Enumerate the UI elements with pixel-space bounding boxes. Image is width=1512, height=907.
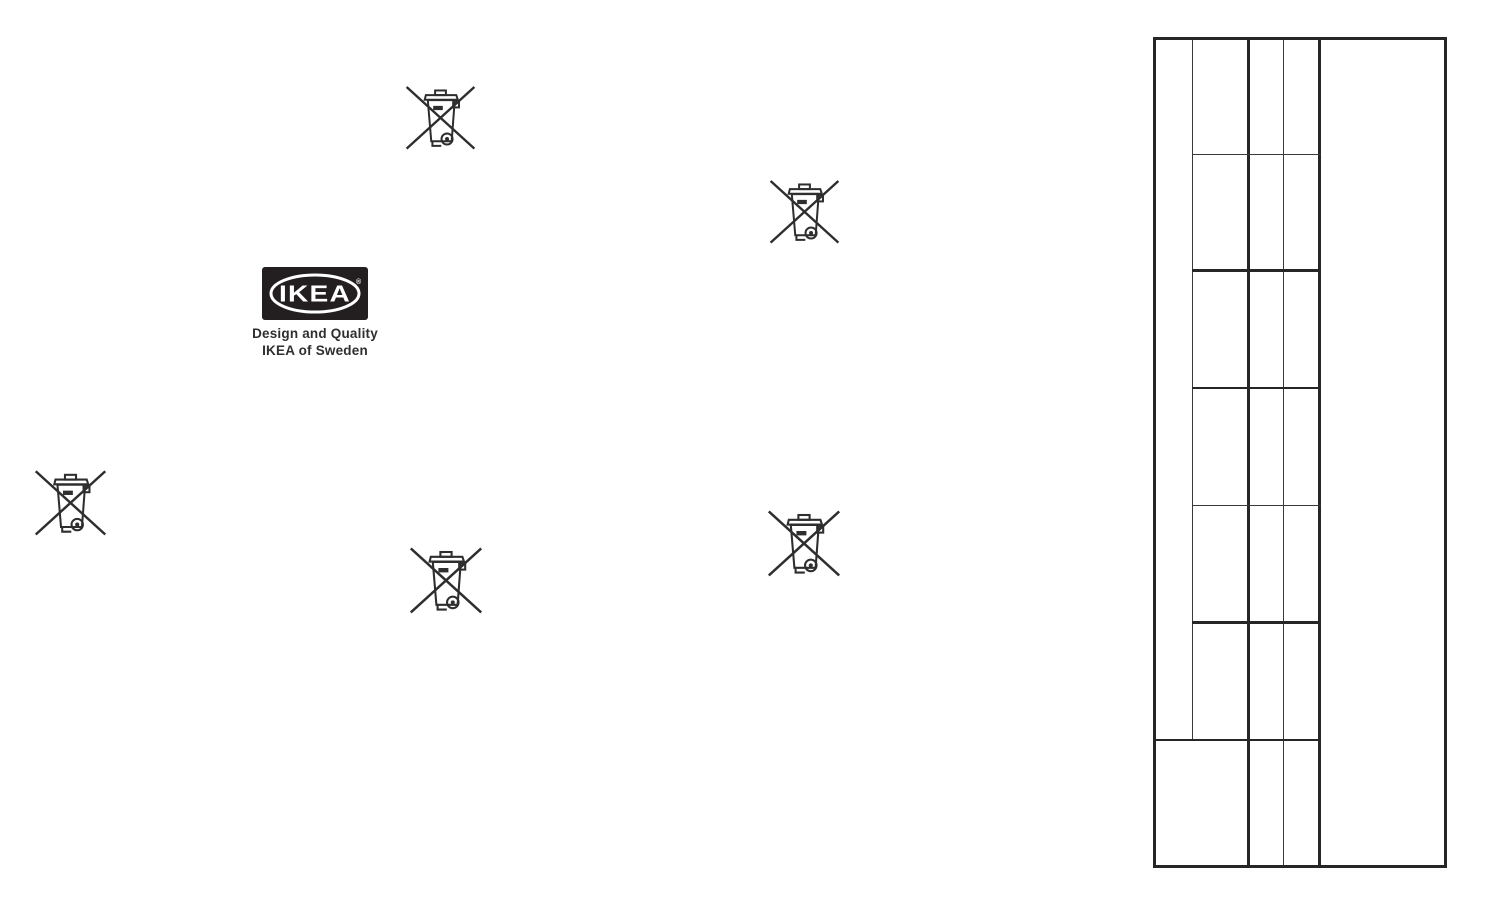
ikea-logo-graphic: IKEA ® xyxy=(262,267,368,320)
table-column-divider xyxy=(1192,40,1193,739)
table-row-divider xyxy=(1192,387,1321,389)
logo-tagline-line1: Design and Quality xyxy=(235,326,395,343)
registered-trademark-symbol: ® xyxy=(356,278,362,286)
logo-tagline-line2: IKEA of Sweden xyxy=(235,343,395,360)
table-column-divider xyxy=(1318,40,1321,865)
page: IKEA ® Design and Quality IKEA of Sweden xyxy=(0,0,1512,907)
table-row-divider xyxy=(1192,621,1321,624)
weee-crossed-out-bin-icon xyxy=(766,171,843,248)
table-row-divider xyxy=(1192,154,1321,155)
weee-crossed-out-bin-icon xyxy=(764,501,844,581)
logo-tagline: Design and Quality IKEA of Sweden xyxy=(235,326,395,359)
weee-crossed-out-bin-icon xyxy=(31,461,110,540)
table-column-divider xyxy=(1283,40,1284,865)
table-row-divider xyxy=(1192,269,1321,272)
ikea-logo-text: IKEA xyxy=(279,281,351,307)
blank-label-grid-table xyxy=(1153,37,1447,868)
weee-crossed-out-bin-icon xyxy=(406,538,486,618)
ikea-logo: IKEA ® Design and Quality IKEA of Sweden xyxy=(262,267,368,359)
table-column-divider xyxy=(1247,40,1250,865)
table-row-divider xyxy=(1192,505,1321,506)
table-row-divider xyxy=(1156,739,1321,741)
weee-crossed-out-bin-icon xyxy=(402,77,479,154)
